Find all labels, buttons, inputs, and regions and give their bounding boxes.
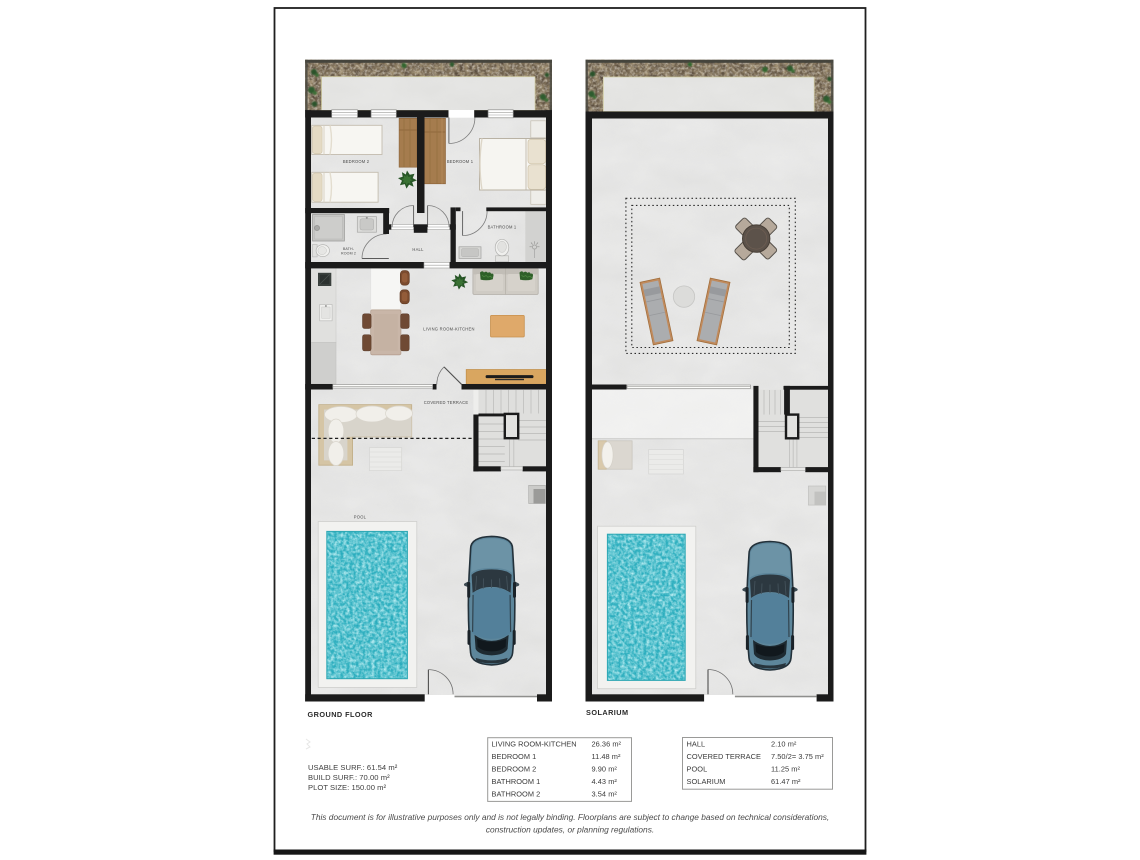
svg-text:BEDROOM 2: BEDROOM 2 <box>343 159 370 164</box>
svg-text:BATHROOM 1: BATHROOM 1 <box>492 777 541 786</box>
svg-text:BATHROOM 2: BATHROOM 2 <box>492 790 541 799</box>
svg-text:26.36 m²: 26.36 m² <box>592 740 622 749</box>
svg-text:7.50/2= 3.75 m²: 7.50/2= 3.75 m² <box>771 752 824 761</box>
svg-text:HALL: HALL <box>687 740 706 749</box>
svg-text:3.54 m²: 3.54 m² <box>592 790 618 799</box>
svg-text:SOLARIUM: SOLARIUM <box>586 708 629 717</box>
svg-text:HALL: HALL <box>412 247 424 252</box>
svg-text:9.90 m²: 9.90 m² <box>592 765 618 774</box>
svg-text:61.47 m²: 61.47 m² <box>771 777 801 786</box>
svg-text:ROOM 2: ROOM 2 <box>341 252 356 256</box>
svg-text:GROUND FLOOR: GROUND FLOOR <box>308 710 374 719</box>
svg-text:This document is for illustrat: This document is for illustrative purpos… <box>311 812 830 822</box>
svg-text:COVERED TERRACE: COVERED TERRACE <box>424 400 469 405</box>
svg-text:11.48 m²: 11.48 m² <box>592 752 622 761</box>
svg-text:SOLARIUM: SOLARIUM <box>687 777 726 786</box>
svg-text:COVERED TERRACE: COVERED TERRACE <box>687 752 762 761</box>
svg-text:BUILD SURF.: 70.00 m²: BUILD SURF.: 70.00 m² <box>308 773 390 782</box>
svg-text:BEDROOM 1: BEDROOM 1 <box>492 752 537 761</box>
svg-text:BATHROOM 1: BATHROOM 1 <box>488 225 517 230</box>
svg-text:11.25 m²: 11.25 m² <box>771 765 801 774</box>
svg-text:BATH-: BATH- <box>343 247 355 251</box>
svg-text:POOL: POOL <box>354 515 367 520</box>
svg-text:LIVING ROOM-KITCHEN: LIVING ROOM-KITCHEN <box>492 740 577 749</box>
svg-text:LIVING ROOM-KITCHEN: LIVING ROOM-KITCHEN <box>423 327 474 332</box>
svg-text:BEDROOM 2: BEDROOM 2 <box>492 765 537 774</box>
svg-text:BEDROOM 1: BEDROOM 1 <box>447 159 474 164</box>
svg-text:4.43 m²: 4.43 m² <box>592 777 618 786</box>
svg-text:construction updates, or plann: construction updates, or planning regula… <box>486 825 654 835</box>
svg-text:2.10 m²: 2.10 m² <box>771 740 797 749</box>
svg-text:USABLE SURF.: 61.54 m²: USABLE SURF.: 61.54 m² <box>308 763 398 772</box>
svg-text:POOL: POOL <box>687 765 708 774</box>
svg-text:PLOT SIZE: 150.00 m²: PLOT SIZE: 150.00 m² <box>308 783 387 792</box>
